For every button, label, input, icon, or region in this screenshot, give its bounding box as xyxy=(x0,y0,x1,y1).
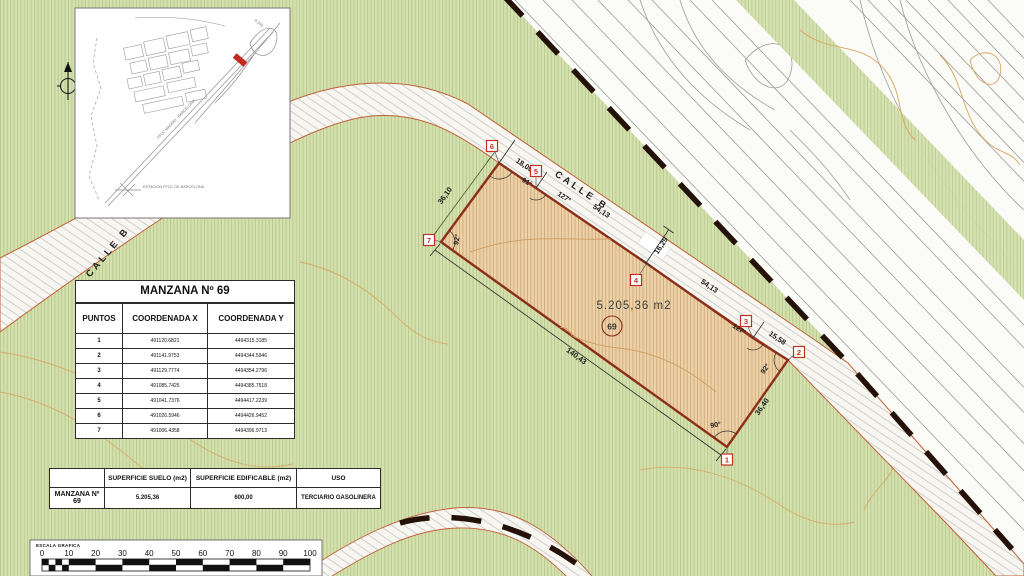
cell-y: 4494315.3185 xyxy=(208,334,295,349)
surface-table-block: SUPERFICIE SUELO (m2) SUPERFICIE EDIFICA… xyxy=(49,468,381,509)
cell-y: 4494417.2239 xyxy=(208,394,295,409)
point-label-2: 2 xyxy=(797,348,801,357)
table-row: 5 491041.7376 4494417.2239 xyxy=(76,394,295,409)
inset-location-map: N 340 FFCC MADRID - BARCELONA ESTACION F… xyxy=(75,8,290,218)
cell-y: 4494385.7518 xyxy=(208,379,295,394)
coordinate-table-block: MANZANA Nº 69 PUNTOS COORDENADA X COORDE… xyxy=(75,280,295,439)
table-row: 7 491006.4358 4494396.9713 xyxy=(76,424,295,439)
cell-x: 491026.5946 xyxy=(123,409,208,424)
col-suelo: SUPERFICIE SUELO (m2) xyxy=(105,469,191,488)
parcel-number: 69 xyxy=(607,322,617,332)
cell-x: 491041.7376 xyxy=(123,394,208,409)
cell-punto: 5 xyxy=(76,394,123,409)
cell-y: 4494426.9452 xyxy=(208,409,295,424)
parcel-area-label: 5.205,36 m2 xyxy=(597,300,672,312)
table-row: 3 491129.7774 4494354.2796 xyxy=(76,364,295,379)
col-coordenada-x: COORDENADA X xyxy=(123,304,208,334)
surface-table: SUPERFICIE SUELO (m2) SUPERFICIE EDIFICA… xyxy=(49,468,381,509)
scale-tick: 80 xyxy=(252,549,261,558)
col-puntos: PUNTOS xyxy=(76,304,123,334)
coordinate-table-title: MANZANA Nº 69 xyxy=(75,280,295,303)
scale-tick: 10 xyxy=(64,549,73,558)
scale-tick: 20 xyxy=(91,549,100,558)
inset-station-label: ESTACION FFCC DE BARCELONA xyxy=(143,185,205,189)
cell-y: 4494396.9713 xyxy=(208,424,295,439)
col-uso: USO xyxy=(297,469,381,488)
cell-punto: 3 xyxy=(76,364,123,379)
scale-tick: 40 xyxy=(145,549,154,558)
cell-x: 491120.6821 xyxy=(123,334,208,349)
surface-table-header-row: SUPERFICIE SUELO (m2) SUPERFICIE EDIFICA… xyxy=(50,469,381,488)
col-coordenada-y: COORDENADA Y xyxy=(208,304,295,334)
point-label-5: 5 xyxy=(534,167,538,176)
coordinate-table: PUNTOS COORDENADA X COORDENADA Y 1 49112… xyxy=(75,303,295,439)
table-row: 4 491085.7425 4494385.7518 xyxy=(76,379,295,394)
cell-y: 4494354.2796 xyxy=(208,364,295,379)
cell-punto: 6 xyxy=(76,409,123,424)
col-edificable: SUPERFICIE EDIFICABLE (m2) xyxy=(191,469,297,488)
scale-tick: 100 xyxy=(303,549,317,558)
cell-superficie-suelo: 5.205,36 xyxy=(105,488,191,509)
cell-x: 491085.7425 xyxy=(123,379,208,394)
cell-punto: 2 xyxy=(76,349,123,364)
point-label-7: 7 xyxy=(427,236,431,245)
scale-bar-blocks xyxy=(42,559,310,571)
table-row: 1 491120.6821 4494315.3185 xyxy=(76,334,295,349)
coordinate-table-header-row: PUNTOS COORDENADA X COORDENADA Y xyxy=(76,304,295,334)
cell-superficie-edificable: 600,00 xyxy=(191,488,297,509)
cell-x: 491129.7774 xyxy=(123,364,208,379)
cell-uso: TERCIARIO GASOLINERA xyxy=(297,488,381,509)
scale-tick: 60 xyxy=(198,549,207,558)
table-row: 6 491026.5946 4494426.9452 xyxy=(76,409,295,424)
point-label-6: 6 xyxy=(490,142,494,151)
table-row: 2 491141.9753 4494344.5946 xyxy=(76,349,295,364)
point-label-3: 3 xyxy=(744,317,748,326)
cell-manzana-label: MANZANA Nº 69 xyxy=(50,488,105,509)
graphic-scale: ESCALA GRAFICA 0 10 20 30 40 50 60 70 80… xyxy=(30,540,322,576)
cell-punto: 4 xyxy=(76,379,123,394)
cell-punto: 7 xyxy=(76,424,123,439)
scale-tick: 50 xyxy=(172,549,181,558)
cell-x: 491141.9753 xyxy=(123,349,208,364)
scale-tick: 70 xyxy=(225,549,234,558)
cell-x: 491006.4358 xyxy=(123,424,208,439)
scale-tick: 0 xyxy=(40,549,45,558)
cell-y: 4494344.5946 xyxy=(208,349,295,364)
scale-tick: 90 xyxy=(279,549,288,558)
scale-caption: ESCALA GRAFICA xyxy=(36,543,81,548)
cadastral-plan-sheet: 18,00 54,13 16,29 54,13 15,58 36,40 140,… xyxy=(0,0,1024,576)
scale-tick: 30 xyxy=(118,549,127,558)
point-label-1: 1 xyxy=(725,456,729,465)
col-empty xyxy=(50,469,105,488)
table-row: MANZANA Nº 69 5.205,36 600,00 TERCIARIO … xyxy=(50,488,381,509)
cell-punto: 1 xyxy=(76,334,123,349)
